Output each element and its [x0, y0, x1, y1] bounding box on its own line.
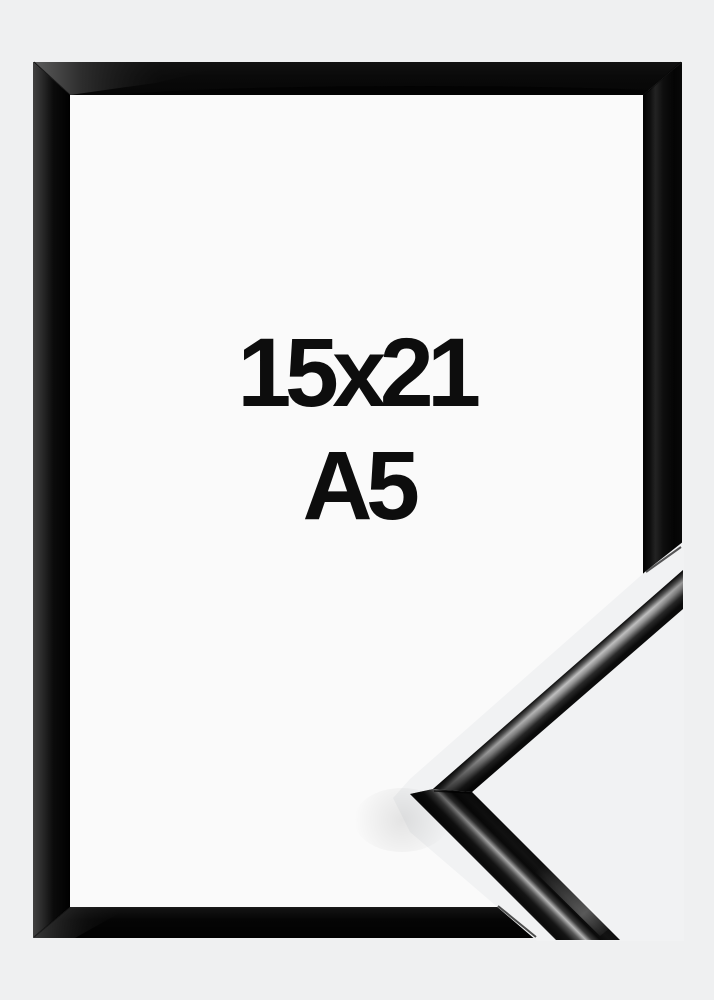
product-photo-black-frame: 15x21 A5: [0, 0, 714, 1000]
frame-photo-canvas: 15x21 A5: [0, 0, 714, 1000]
frame-left-bar: [33, 62, 70, 938]
size-label-primary: 15x21: [237, 318, 479, 427]
size-label-secondary: A5: [303, 431, 419, 540]
